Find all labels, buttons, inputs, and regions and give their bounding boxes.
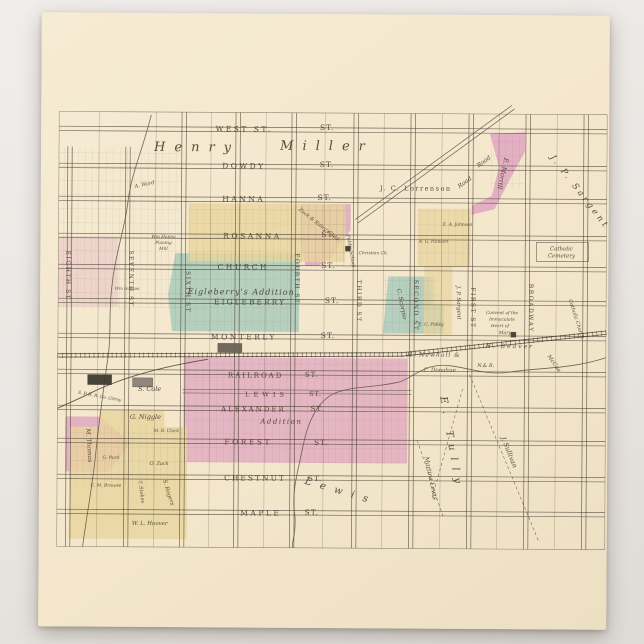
- map-label: THIRD ST: [355, 280, 362, 323]
- map-label: McCue: [545, 353, 562, 374]
- map-label: FOREST: [224, 437, 272, 446]
- map-label: Christian Ch.: [359, 251, 389, 256]
- map-label: DOWDY: [222, 161, 265, 170]
- map-label: FIRST ST: [469, 287, 476, 328]
- map-label: Immaculate: [488, 318, 515, 323]
- map-label: SEVENTH ST: [127, 250, 134, 307]
- map-label: G. Buck: [102, 456, 120, 461]
- map-label: S. Cole: [138, 385, 161, 393]
- map-label: Mill: [158, 247, 168, 252]
- map-label: ST.: [321, 261, 335, 270]
- map-label: Heart of: [490, 324, 511, 329]
- map-label: ALEXANDER: [220, 405, 286, 413]
- page-background: WEST ST.ST.DOWDYST.HANNAST.ROSANNAST.CHU…: [0, 0, 644, 644]
- map-label: J. P. Sargent: [455, 285, 462, 321]
- map-label: Catholic Church: [567, 299, 585, 340]
- map-label: ST.: [325, 296, 339, 305]
- map-label: ST.: [305, 371, 319, 379]
- map-label: Addition: [259, 418, 302, 426]
- map-label: Wm Hanson: [115, 286, 140, 291]
- map-label: M. B. Clark: [153, 429, 180, 434]
- map-label: G. Niggle: [130, 413, 161, 421]
- map-label: ST.: [318, 193, 332, 202]
- map-label: Road: [456, 175, 474, 191]
- map-label: J. C. Lorrenson: [379, 184, 452, 192]
- map-label: N.& B.: [476, 363, 494, 369]
- map-label: ST.: [320, 160, 334, 169]
- map-label: MONTERLY: [211, 332, 277, 341]
- map-label: EIGLEBERRY: [214, 297, 286, 306]
- map-label: ROSANNA: [223, 231, 281, 240]
- map-label: ST.: [321, 331, 335, 340]
- map-label: Martina Lewis: [422, 455, 438, 500]
- map-label: Planing: [154, 241, 172, 246]
- map-label: W. L. Hoover: [132, 521, 168, 527]
- map-label: ST.: [305, 508, 319, 517]
- map-label: A. G. Hanson: [418, 240, 448, 245]
- map-label: BROADWAY: [527, 284, 534, 333]
- map-label: Cemetery: [548, 253, 576, 259]
- map-label: E. C. Polley: [417, 323, 444, 328]
- map-label: Wm Hanna: [151, 235, 176, 240]
- map-label: S. P. R. R. Co. Gilroy: [78, 391, 123, 404]
- map-label: E. A. Johnson: [442, 223, 473, 228]
- map-label: Catholic: [550, 246, 573, 252]
- map-label: Convent of the: [486, 311, 519, 316]
- map-label: C. M. Browne: [91, 484, 122, 489]
- map-label: LEWIS: [245, 391, 288, 399]
- map-label: RAILROAD: [228, 371, 283, 379]
- map-label: H. Newhall &: [406, 352, 461, 359]
- map-label: ST.: [311, 405, 325, 413]
- map-label: HANNA: [222, 194, 265, 203]
- map-label: WEST ST.: [216, 124, 273, 133]
- map-label: MAPLE: [240, 508, 281, 517]
- map-label: H. Beaver: [485, 343, 534, 350]
- map-label: ST.: [314, 438, 328, 447]
- map-label: Miller: [279, 139, 374, 155]
- map-label: J. P. Sargent: [546, 152, 609, 232]
- vintage-map-postcard: WEST ST.ST.DOWDYST.HANNAST.ROSANNAST.CHU…: [38, 12, 610, 629]
- map-label: C. Donahue: [423, 368, 456, 374]
- map-label: EIGHTH ST: [64, 251, 71, 301]
- map-label: ST.: [309, 390, 322, 398]
- map-label: CHESTNUT: [224, 473, 286, 482]
- map-label: O. Zack: [149, 461, 168, 467]
- gilroy-plat-map: WEST ST.ST.DOWDYST.HANNAST.ROSANNAST.CHU…: [38, 12, 610, 629]
- map-label: Eigleberry's Addition: [187, 287, 295, 297]
- map-label: Road: [475, 154, 493, 170]
- map-label: CHURCH: [218, 262, 270, 271]
- map-label: ST.: [320, 123, 334, 132]
- map-label: Mary: [498, 330, 512, 336]
- map-label: Henry: [153, 140, 240, 156]
